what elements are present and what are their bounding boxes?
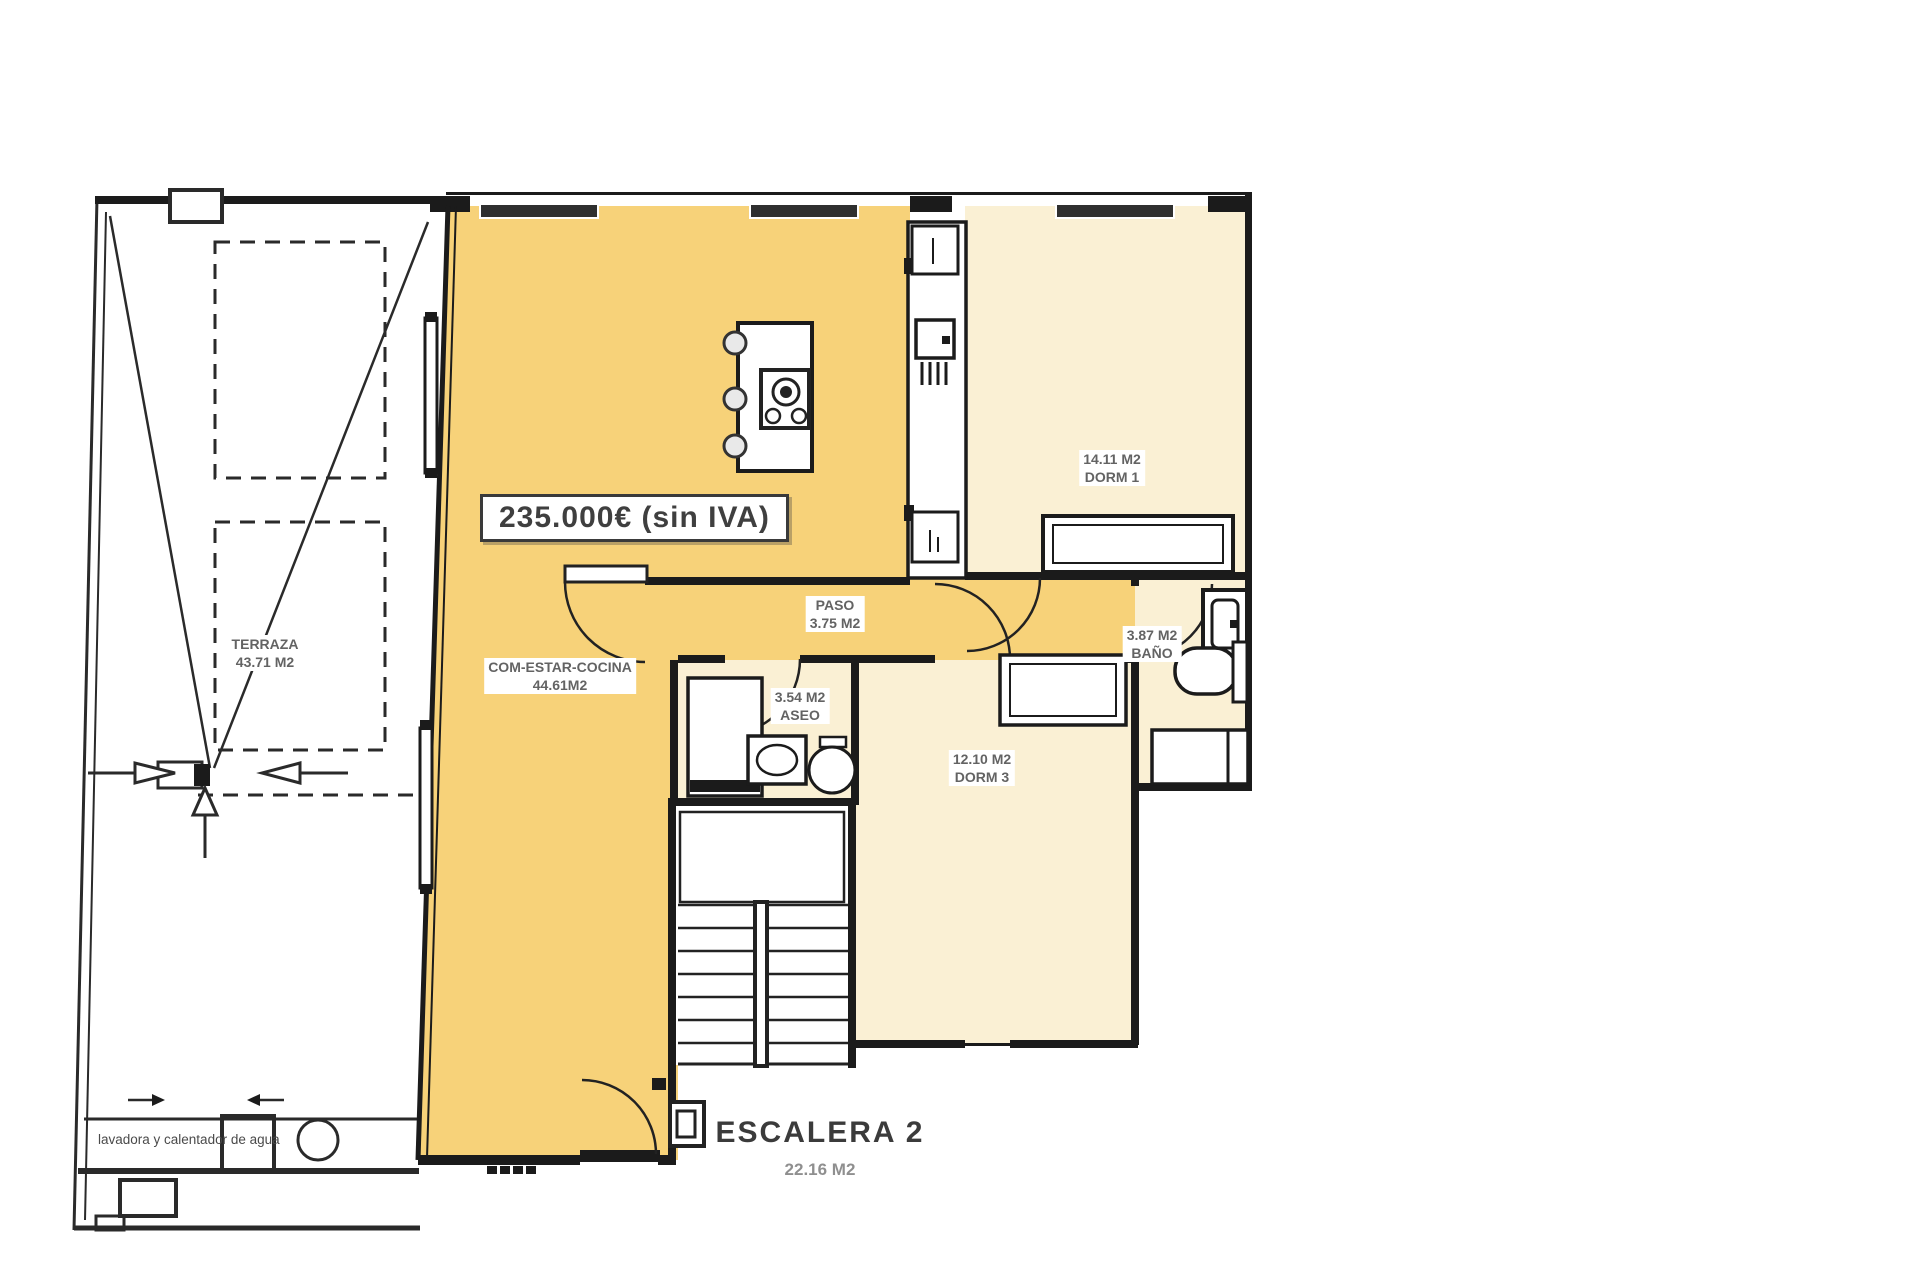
shower-tray bbox=[1152, 730, 1248, 784]
laundry-annotation: lavadora y calentador de agua bbox=[98, 1132, 280, 1147]
washing-machine bbox=[120, 1180, 176, 1216]
label-bano: 3.87 M2 BAÑO bbox=[1123, 626, 1182, 662]
label-aseo: 3.54 M2 ASEO bbox=[771, 688, 830, 724]
projection-line-right bbox=[214, 222, 428, 768]
label-dorm3: 12.10 M2 DORM 3 bbox=[949, 750, 1015, 786]
stool bbox=[724, 388, 746, 410]
kitchen-wall-strip bbox=[904, 222, 966, 578]
corridor-door-leaf bbox=[565, 566, 647, 582]
sink bbox=[1175, 648, 1237, 694]
stool bbox=[724, 332, 746, 354]
label-terraza: TERRAZA 43.71 M2 bbox=[228, 635, 303, 671]
window-top-3 bbox=[1056, 204, 1174, 218]
entrance-door-leaf bbox=[580, 1150, 660, 1162]
window-terrace-2 bbox=[420, 728, 432, 888]
projection-line-left bbox=[110, 216, 210, 768]
floor-plan-page: lavadora y calentador de agua 235.000€ (… bbox=[0, 0, 1920, 1280]
price-tag: 235.000€ (sin IVA) bbox=[480, 494, 789, 542]
label-escalera-area: 22.16 M2 bbox=[720, 1160, 920, 1180]
label-escalera: ESCALERA 2 bbox=[700, 1116, 940, 1150]
stair-stringer bbox=[755, 902, 767, 1066]
window-top-1 bbox=[480, 204, 598, 218]
label-salon: COM-ESTAR-COCINA 44.61M2 bbox=[484, 658, 636, 694]
dorm3-closet bbox=[1000, 655, 1126, 725]
water-heater-circle bbox=[298, 1120, 338, 1160]
kitchen-island bbox=[724, 323, 812, 471]
slope-arrows bbox=[88, 763, 348, 1106]
window-terrace-1 bbox=[425, 318, 437, 473]
toilet bbox=[809, 747, 855, 793]
stool bbox=[724, 435, 746, 457]
lobby-meter-box bbox=[670, 1102, 704, 1146]
label-dorm1: 14.11 M2 DORM 1 bbox=[1079, 450, 1145, 486]
terrace bbox=[74, 190, 448, 1230]
window-top-2 bbox=[750, 204, 858, 218]
label-paso: PASO 3.75 M2 bbox=[806, 596, 865, 632]
